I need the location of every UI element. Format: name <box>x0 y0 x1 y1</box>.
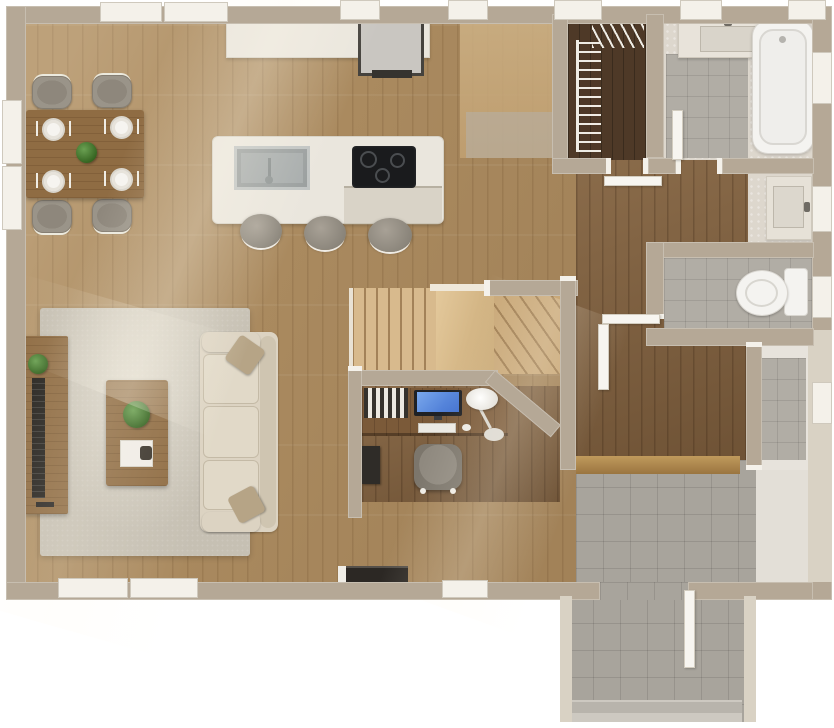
console-handle <box>36 502 54 507</box>
wall-wc-bottom <box>646 328 814 346</box>
burner <box>360 151 377 168</box>
porch-wall-left <box>560 596 572 722</box>
wall-closet-bath <box>646 14 664 158</box>
dining-chair <box>32 200 72 233</box>
cutlery <box>69 121 71 136</box>
wire-shelving-top <box>592 20 644 48</box>
wall-cap <box>676 158 681 174</box>
wall-h-bath-bottom-left <box>648 158 676 174</box>
hall-door <box>598 324 609 390</box>
wall-nook-left <box>348 370 362 518</box>
mudroom-floor <box>576 460 756 586</box>
window <box>2 166 22 230</box>
toilet-seat-ring <box>745 279 778 307</box>
book-row <box>364 388 408 418</box>
alcove-sink <box>773 186 804 228</box>
burner <box>375 168 390 183</box>
monitor-stand <box>434 416 442 420</box>
monitor-screen <box>417 392 459 412</box>
wall-cap <box>717 158 722 174</box>
window <box>812 276 832 318</box>
window <box>812 52 832 104</box>
window <box>442 580 488 598</box>
wall-stair-right <box>560 280 576 470</box>
wall-cap <box>746 465 762 470</box>
tv-screen <box>32 378 45 498</box>
front-door-opening <box>600 582 688 600</box>
stair-landing-ramp <box>436 288 494 374</box>
water-closet-door <box>602 314 660 324</box>
wall-wc-left <box>646 242 664 318</box>
coffee-table-plant <box>123 401 150 428</box>
dining-chair <box>32 76 72 109</box>
storage-tile-inset <box>756 358 806 460</box>
window <box>448 0 488 20</box>
bathroom-door <box>672 110 683 160</box>
office-chair-leg <box>420 488 426 494</box>
burner <box>390 153 405 168</box>
cutlery <box>137 119 139 134</box>
console-plant <box>28 354 48 374</box>
keyboard <box>418 423 456 433</box>
wall-cap <box>643 158 648 174</box>
wall-outer-bottom-right <box>688 582 832 600</box>
porch-step-lower <box>572 713 742 722</box>
tray-cup <box>140 446 152 460</box>
wall-cap <box>560 276 576 281</box>
floor-plan <box>0 0 834 728</box>
wall-nook-top <box>348 370 498 386</box>
window <box>100 2 162 22</box>
window <box>812 382 832 424</box>
sofa-cushion <box>203 406 259 458</box>
bar-stool <box>368 218 412 252</box>
mouse <box>462 424 471 431</box>
stair-top-nosing <box>430 284 490 291</box>
window <box>554 0 602 20</box>
wall-outer-left <box>6 6 26 600</box>
sofa-backrest <box>260 336 276 528</box>
cutlery <box>36 173 38 188</box>
bar-stool <box>304 216 346 250</box>
place-setting <box>42 170 65 193</box>
wall-right-bright <box>808 330 832 582</box>
kitchen-sink <box>234 146 310 190</box>
wall-h-bath-bottom-right <box>722 158 814 174</box>
wall-cap <box>606 158 611 174</box>
closet-door <box>604 176 662 186</box>
cutlery <box>137 171 139 186</box>
bathroom-sink <box>700 26 756 52</box>
window <box>2 100 22 164</box>
cutlery <box>36 121 38 136</box>
place-setting <box>110 116 133 139</box>
window <box>130 578 198 598</box>
sink-faucet <box>268 158 271 178</box>
desk-lamp-base <box>484 428 504 441</box>
cutlery <box>104 119 106 134</box>
dining-chair <box>92 199 132 232</box>
wall-cap <box>484 280 490 296</box>
wire-shelving-side <box>579 40 601 152</box>
office-chair <box>414 444 462 490</box>
window <box>164 2 228 22</box>
office-chair-leg <box>450 488 456 494</box>
centerpiece-plant <box>76 142 97 163</box>
cutlery <box>69 173 71 188</box>
dining-chair <box>92 75 132 108</box>
place-setting <box>42 118 65 141</box>
bar-stool <box>240 214 282 248</box>
window <box>340 0 380 20</box>
sink-faucet-head <box>265 176 273 184</box>
stair-treads-straight <box>352 288 436 374</box>
wall-storage-left <box>746 346 762 470</box>
window <box>788 0 826 20</box>
bathtub-faucet <box>779 36 786 43</box>
coffee-table <box>106 380 168 486</box>
pc-tower <box>362 446 380 484</box>
refrigerator <box>358 16 424 76</box>
mudroom-bright-floor <box>756 470 812 586</box>
bathtub-basin <box>759 29 807 145</box>
wall-vanity-wc <box>662 242 814 258</box>
cutlery <box>104 171 106 186</box>
stair-stringer-edge <box>349 288 353 374</box>
stair-winder-treads <box>494 288 560 374</box>
desk-lamp-shade <box>466 388 498 410</box>
front-door-open <box>684 590 695 668</box>
kitchen-corner-shadow <box>466 112 558 158</box>
wall-kitchen-closet <box>552 14 568 160</box>
window <box>58 578 128 598</box>
place-setting <box>110 168 133 191</box>
wall-h-closet-bottom <box>552 158 610 174</box>
wall-cap <box>746 342 762 347</box>
refrigerator-base <box>372 70 412 78</box>
alcove-faucet <box>804 202 810 212</box>
wall-cap <box>348 366 362 371</box>
window <box>812 186 832 232</box>
porch-wall-right <box>744 596 756 722</box>
window <box>680 0 722 20</box>
wood-threshold <box>576 456 740 474</box>
